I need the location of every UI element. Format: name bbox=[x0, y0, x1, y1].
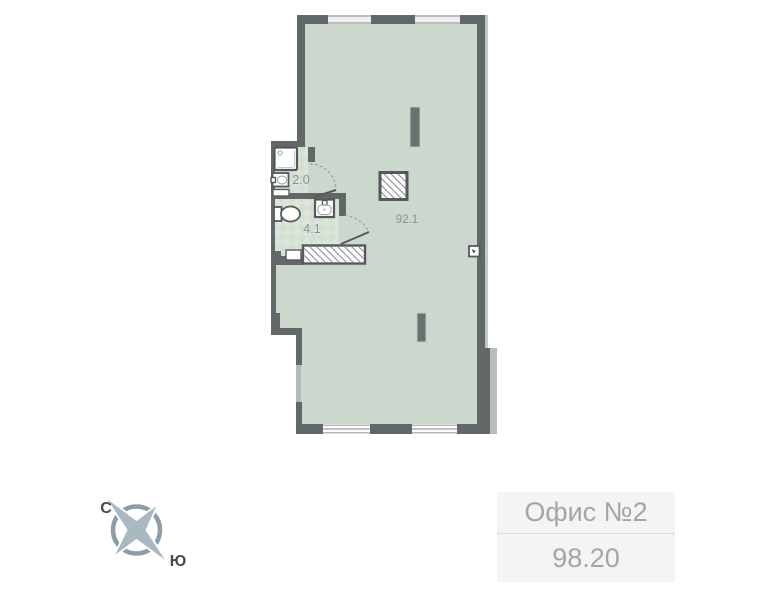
unit-title: Офис №2 bbox=[497, 492, 675, 534]
electrical-panel-icon bbox=[469, 246, 480, 257]
unit-area: 98.20 bbox=[497, 534, 675, 582]
threshold bbox=[286, 250, 301, 260]
vent-shaft bbox=[380, 173, 407, 200]
shower-threshold bbox=[273, 190, 289, 197]
window-bottom-2 bbox=[412, 424, 457, 434]
room-area-label-wc: 4.1 bbox=[303, 222, 320, 236]
unit-info-card: Офис №2 98.20 bbox=[497, 492, 675, 582]
sink-tap bbox=[323, 201, 328, 206]
window-bottom-1 bbox=[323, 424, 370, 434]
column bbox=[417, 313, 426, 342]
window-top-1 bbox=[328, 15, 371, 24]
compass-rose: С Ю bbox=[100, 496, 186, 571]
compass-south-label: Ю bbox=[170, 553, 187, 570]
compass-north-label: С bbox=[100, 500, 112, 517]
room-area-label-shower: 2.0 bbox=[292, 173, 309, 187]
room-area-label-main: 92.1 bbox=[396, 214, 418, 226]
washbasin-tap bbox=[271, 178, 276, 183]
window-top-2 bbox=[415, 15, 460, 24]
column bbox=[410, 107, 420, 147]
toilet-icon bbox=[281, 207, 300, 222]
window-left bbox=[296, 365, 301, 402]
